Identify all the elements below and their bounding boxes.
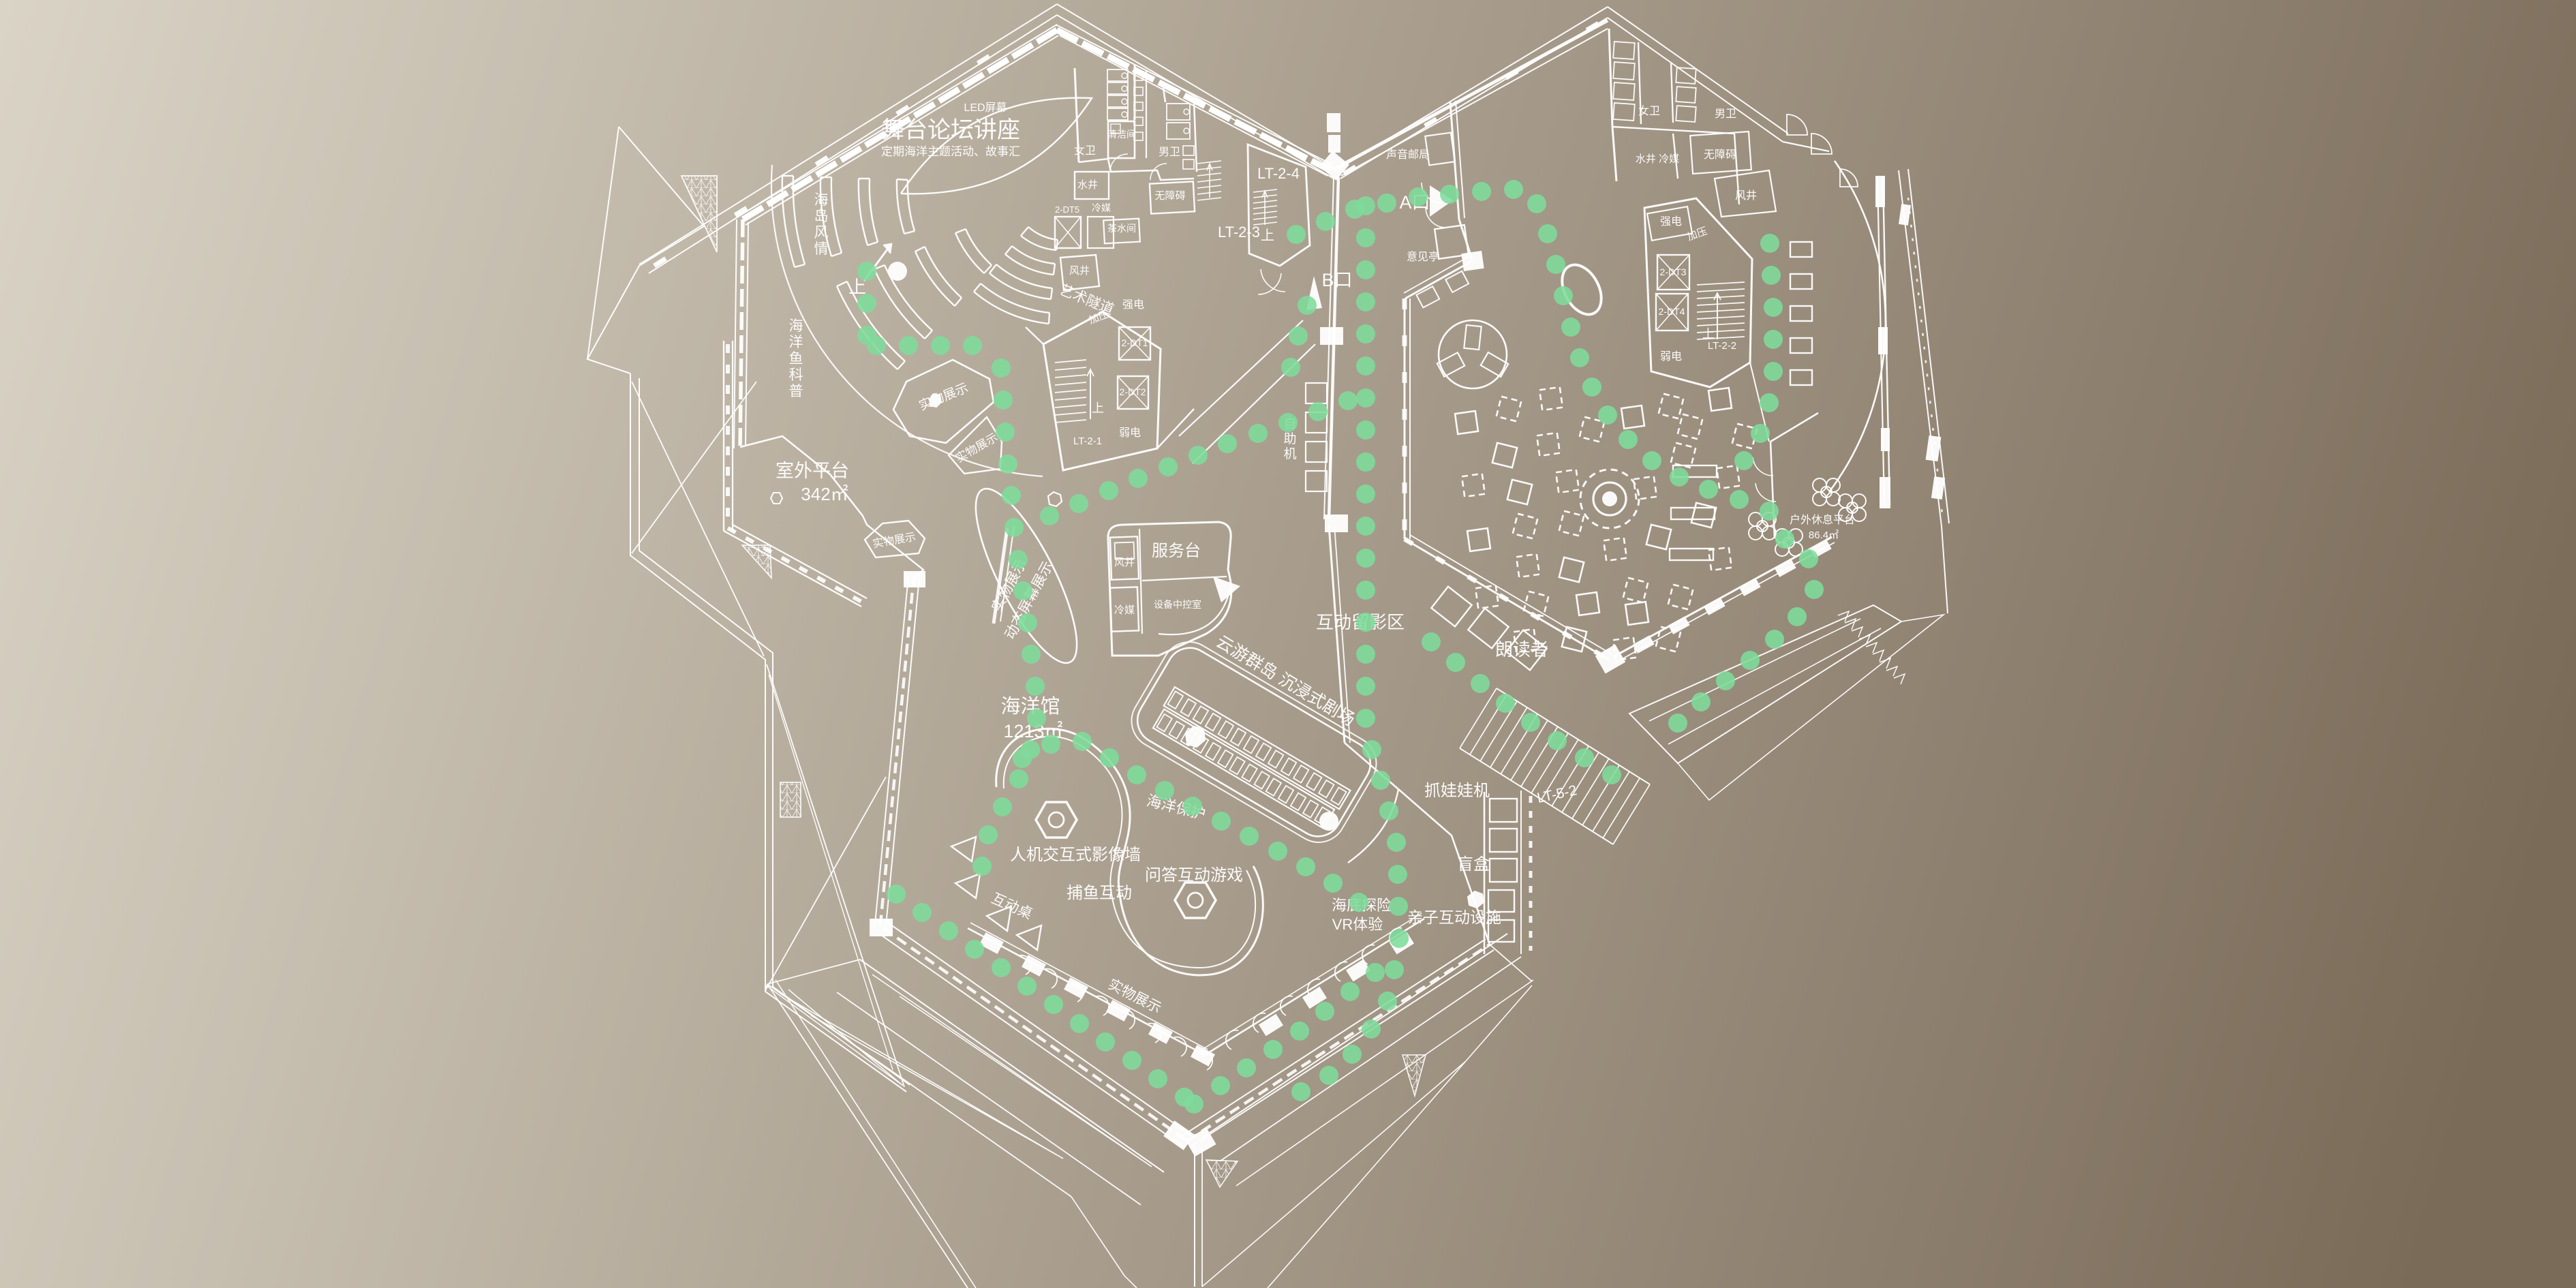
svg-text:冷媒: 冷媒 xyxy=(1092,202,1111,213)
svg-text:风井: 风井 xyxy=(1069,265,1090,277)
svg-text:水井: 水井 xyxy=(1077,179,1098,191)
svg-text:上: 上 xyxy=(1092,401,1104,415)
svg-text:户外休息平台: 户外休息平台 xyxy=(1790,514,1855,526)
svg-text:服务台: 服务台 xyxy=(1152,542,1201,560)
svg-text:海岛风情: 海岛风情 xyxy=(814,192,829,257)
svg-text:声音邮局: 声音邮局 xyxy=(1386,149,1430,161)
svg-text:问答互动游戏: 问答互动游戏 xyxy=(1145,866,1243,885)
svg-text:上: 上 xyxy=(1702,327,1715,341)
svg-text:LED屏幕: LED屏幕 xyxy=(964,102,1007,114)
svg-text:设备中控室: 设备中控室 xyxy=(1154,599,1201,610)
svg-text:意见亭: 意见亭 xyxy=(1407,250,1439,263)
svg-text:LT-2-4: LT-2-4 xyxy=(1257,165,1300,182)
svg-text:冷媒: 冷媒 xyxy=(1114,604,1135,616)
svg-text:LT-2-2: LT-2-2 xyxy=(1708,340,1736,352)
svg-text:女卫: 女卫 xyxy=(1074,144,1096,157)
svg-text:强电: 强电 xyxy=(1122,298,1144,311)
svg-text:2-DT2: 2-DT2 xyxy=(1120,386,1146,397)
svg-text:风井: 风井 xyxy=(1735,189,1757,202)
svg-text:男卫: 男卫 xyxy=(1159,147,1180,158)
svg-text:风井: 风井 xyxy=(1114,557,1135,568)
svg-text:水井 冷媒: 水井 冷媒 xyxy=(1636,153,1679,165)
svg-text:定期海洋主题活动、故事汇: 定期海洋主题活动、故事汇 xyxy=(881,145,1020,158)
svg-text:人机交互式影像墙: 人机交互式影像墙 xyxy=(1010,846,1141,864)
svg-text:茶水间: 茶水间 xyxy=(1107,223,1136,234)
svg-text:LT-2-1: LT-2-1 xyxy=(1073,435,1102,447)
svg-text:342㎡: 342㎡ xyxy=(801,484,848,504)
svg-text:2-DT1: 2-DT1 xyxy=(1122,337,1148,348)
svg-text:清洁间: 清洁间 xyxy=(1107,129,1136,140)
svg-text:无障碍: 无障碍 xyxy=(1154,189,1185,202)
svg-text:LT-2-3: LT-2-3 xyxy=(1218,224,1260,241)
svg-text:无障碍: 无障碍 xyxy=(1704,149,1736,161)
svg-text:2-DT3: 2-DT3 xyxy=(1660,266,1687,277)
svg-text:上: 上 xyxy=(1261,228,1274,243)
svg-text:男卫: 男卫 xyxy=(1715,108,1736,120)
svg-text:女卫: 女卫 xyxy=(1638,104,1660,117)
svg-text:舞台论坛讲座: 舞台论坛讲座 xyxy=(881,117,1020,143)
svg-text:海洋鱼科普: 海洋鱼科普 xyxy=(789,318,803,399)
svg-text:86.4㎡: 86.4㎡ xyxy=(1809,530,1839,541)
svg-text:B口: B口 xyxy=(1321,270,1352,290)
svg-text:抓娃娃机: 抓娃娃机 xyxy=(1424,782,1490,800)
svg-text:弱电: 弱电 xyxy=(1119,427,1141,439)
svg-text:2-DT4: 2-DT4 xyxy=(1659,306,1685,317)
svg-text:2-DT5: 2-DT5 xyxy=(1055,204,1079,215)
svg-text:弱电: 弱电 xyxy=(1660,350,1682,363)
svg-text:强电: 强电 xyxy=(1660,215,1682,228)
svg-text:亲子互动设施: 亲子互动设施 xyxy=(1407,908,1501,926)
svg-text:捕鱼互动: 捕鱼互动 xyxy=(1067,884,1132,902)
svg-text:室外平台: 室外平台 xyxy=(776,461,849,481)
svg-text:VR体验: VR体验 xyxy=(1332,916,1383,933)
